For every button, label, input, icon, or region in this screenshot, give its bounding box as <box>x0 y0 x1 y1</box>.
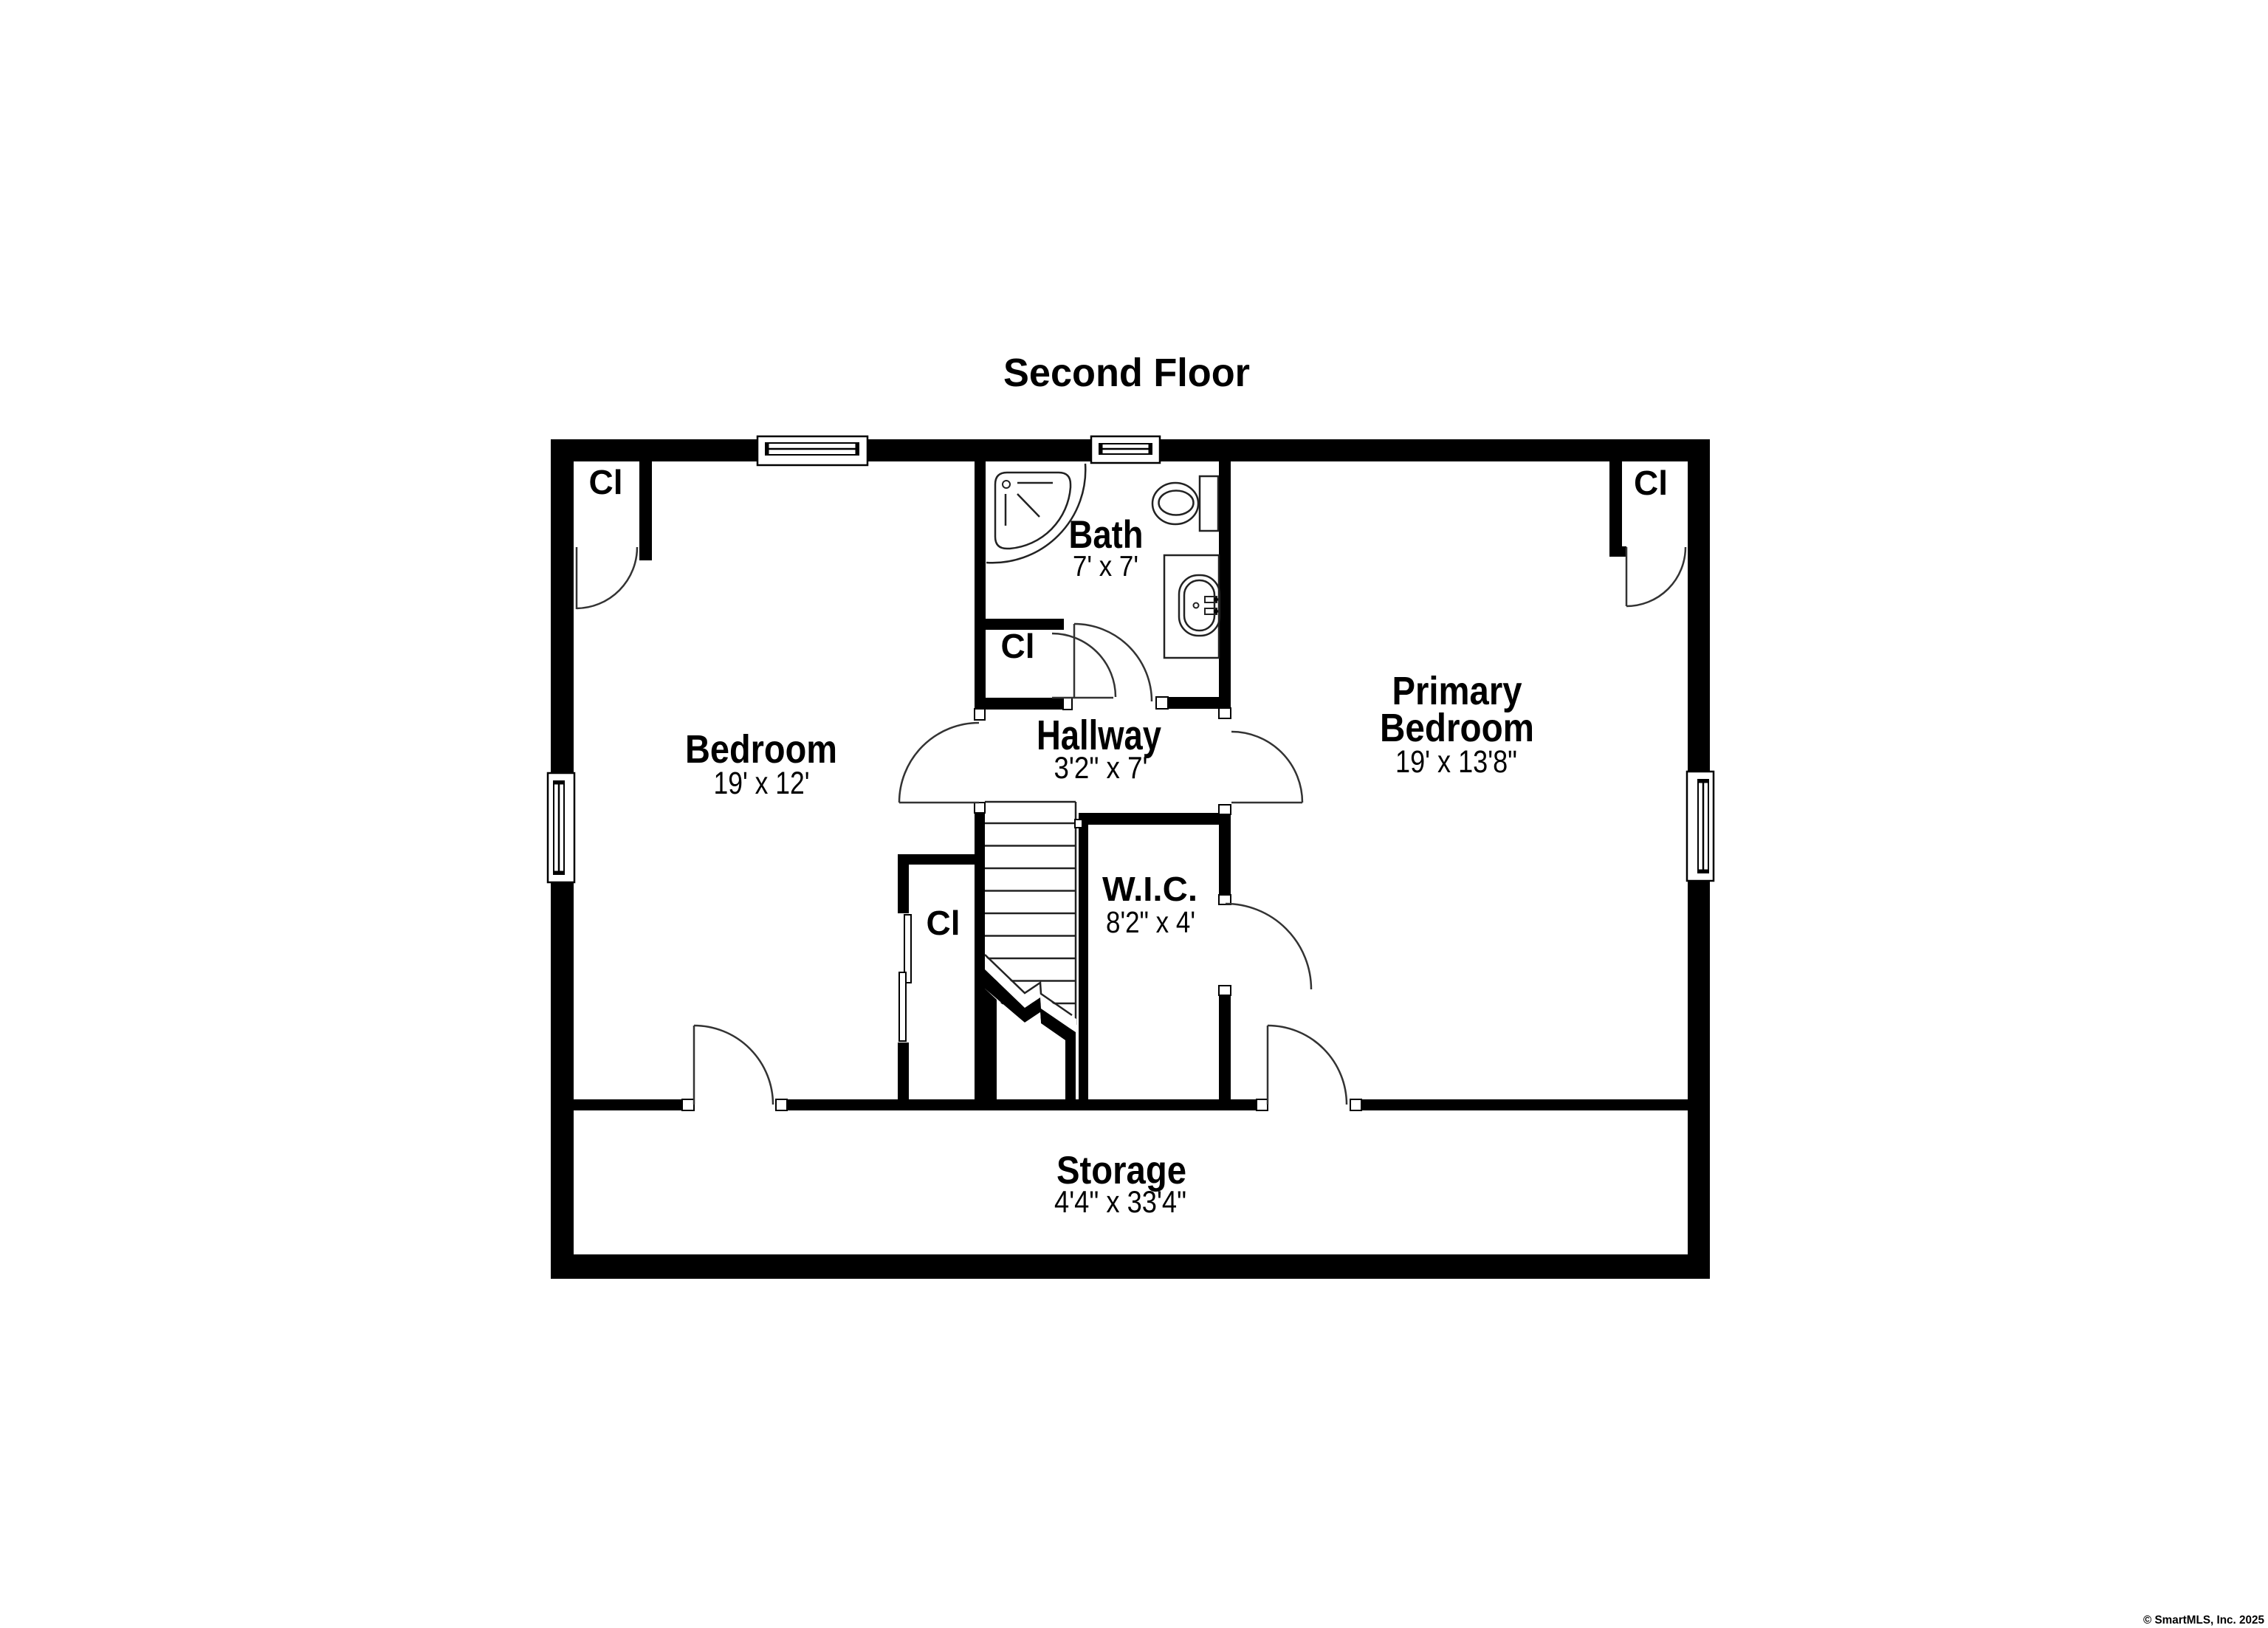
svg-text:3'2" x 7': 3'2" x 7' <box>1054 750 1148 785</box>
svg-text:Cl: Cl <box>927 904 961 942</box>
svg-text:W.I.C.: W.I.C. <box>1102 870 1197 908</box>
svg-text:© SmartMLS, Inc. 2025: © SmartMLS, Inc. 2025 <box>2143 1614 2264 1627</box>
svg-text:Second Floor: Second Floor <box>1003 351 1250 395</box>
svg-text:4'4" x 33'4": 4'4" x 33'4" <box>1054 1184 1186 1219</box>
svg-text:Bedroom: Bedroom <box>685 727 837 772</box>
svg-text:7' x 7': 7' x 7' <box>1073 551 1138 583</box>
svg-text:Bedroom: Bedroom <box>1380 706 1534 750</box>
svg-text:Cl: Cl <box>589 463 623 501</box>
svg-text:19' x 13'8": 19' x 13'8" <box>1395 744 1517 780</box>
svg-text:Cl: Cl <box>1001 627 1035 665</box>
svg-text:19' x 12': 19' x 12' <box>714 766 810 801</box>
svg-text:Cl: Cl <box>1634 464 1668 502</box>
svg-text:8'2" x 4': 8'2" x 4' <box>1106 905 1195 939</box>
